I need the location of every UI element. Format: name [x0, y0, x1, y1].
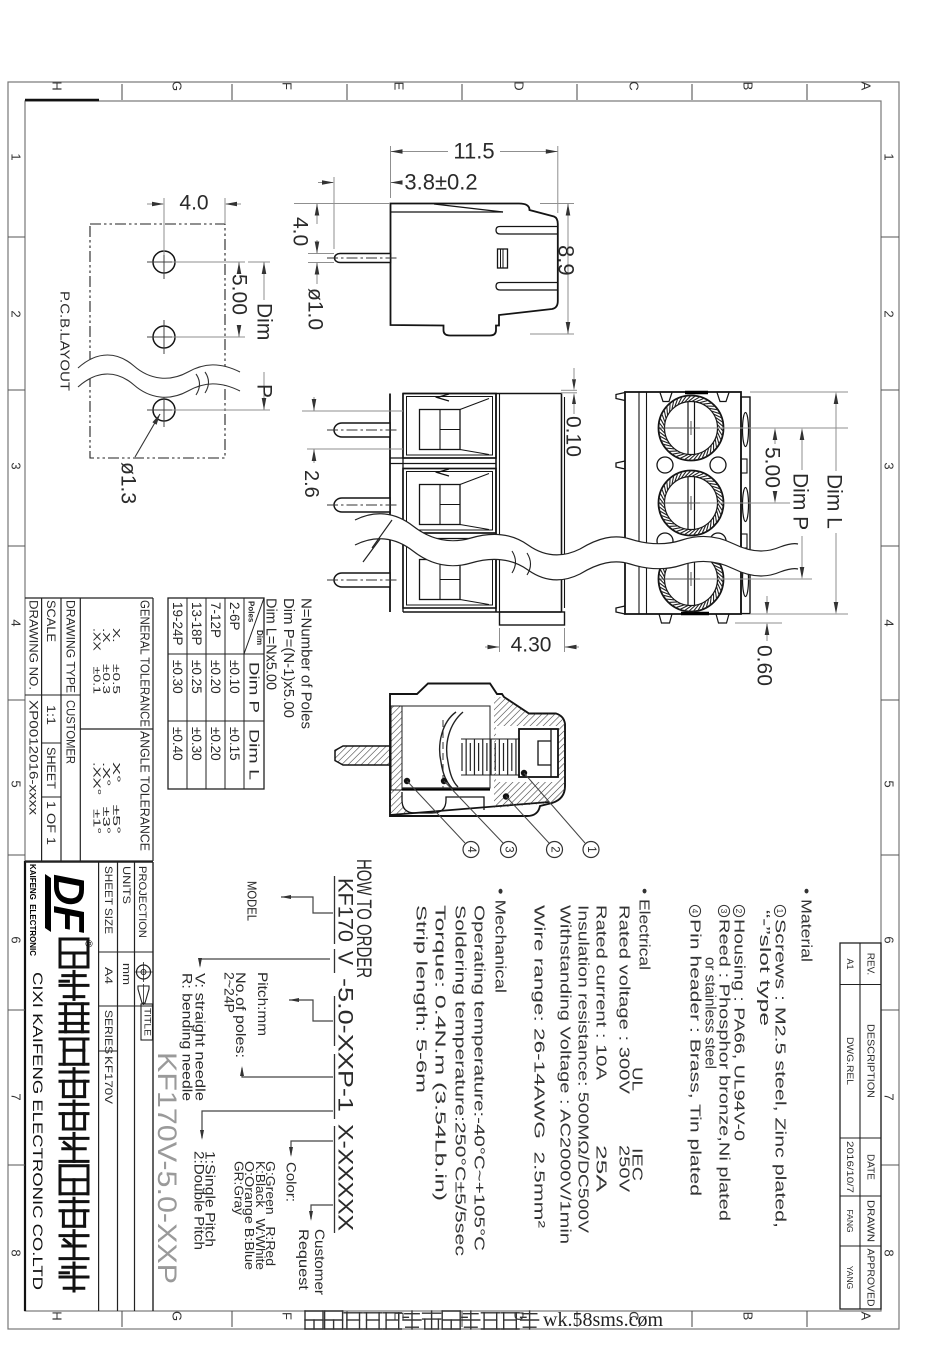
svg-text:ø1.0: ø1.0 [304, 288, 327, 330]
svg-text:±0.20: ±0.20 [208, 727, 223, 761]
svg-text:2-6P: 2-6P [227, 602, 242, 631]
svg-text:1:1: 1:1 [44, 705, 58, 725]
svg-text:• Material: • Material [798, 888, 815, 962]
svg-text:0.60: 0.60 [753, 645, 776, 686]
svg-text:13-18P: 13-18P [189, 602, 204, 646]
svg-text:Dim P: Dim P [789, 473, 812, 530]
svg-text:2: 2 [549, 846, 561, 852]
svg-text:SERIES: SERIES [102, 1010, 114, 1054]
svg-text:YANG: YANG [845, 1266, 855, 1289]
svg-text:DRAWING NO.: DRAWING NO. [27, 600, 41, 690]
svg-text:Screws : M2.5 steel, Zinc plat: Screws : M2.5 steel, Zinc plated, [772, 919, 789, 1228]
svg-text:P.C.B.LAYOUT: P.C.B.LAYOUT [58, 291, 73, 391]
svg-text:±0.10: ±0.10 [227, 660, 242, 694]
svg-text:1: 1 [585, 846, 597, 852]
svg-text:DATE: DATE [865, 1154, 876, 1180]
svg-text:4: 4 [465, 846, 477, 853]
svg-text:SCALE: SCALE [44, 600, 58, 642]
svg-text:DRAWING TYPE: DRAWING TYPE [64, 600, 78, 693]
svg-text:Dim P: Dim P [247, 662, 262, 713]
svg-text:GENERAL TOLERANCE: GENERAL TOLERANCE [138, 600, 153, 727]
svg-text:A: A [859, 82, 874, 91]
svg-text:D: D [512, 81, 527, 90]
svg-text:Rated voltage : 300V: Rated voltage : 300V [616, 905, 633, 1095]
svg-text:G: G [170, 81, 185, 91]
svg-text:• Mechanical: • Mechanical [492, 888, 509, 993]
svg-text:±0.30: ±0.30 [189, 727, 204, 761]
svg-text:5.00: 5.00 [228, 274, 251, 315]
svg-text:6: 6 [9, 936, 24, 943]
svg-text:.XX ±0.1: .XX ±0.1 [91, 628, 103, 694]
svg-text:A4: A4 [102, 967, 114, 984]
svg-text:“-”slot type: “-”slot type [756, 910, 773, 1026]
svg-text:A: A [859, 1312, 874, 1321]
svg-text:2: 2 [9, 310, 24, 317]
svg-text:ø1.3: ø1.3 [117, 462, 140, 504]
svg-text:7: 7 [882, 1093, 897, 1100]
svg-text:3: 3 [719, 909, 729, 914]
svg-text:4: 4 [9, 619, 24, 626]
svg-text:Dim L=Nx5.00: Dim L=Nx5.00 [263, 598, 280, 690]
svg-text:Color:: Color: [284, 1162, 300, 1202]
svg-text:3: 3 [503, 846, 515, 852]
svg-text:4.0: 4.0 [179, 192, 208, 215]
svg-text:C: C [627, 81, 642, 90]
svg-text:4: 4 [690, 909, 700, 914]
svg-text:XP0012016-xxxx: XP0012016-xxxx [27, 700, 41, 815]
svg-text:7-12P: 7-12P [208, 602, 223, 638]
svg-text:4.30: 4.30 [511, 634, 552, 657]
svg-text:F: F [280, 82, 295, 90]
svg-text:F: F [280, 1312, 295, 1320]
svg-text:1: 1 [882, 153, 897, 160]
svg-text:2: 2 [734, 909, 744, 914]
svg-text:GR:Gray: GR:Gray [232, 1161, 247, 1216]
svg-text:Operating temperature:-40°C~+1: Operating temperature:-40°C~+105°C [471, 905, 488, 1251]
svg-text:CUSTOMER: CUSTOMER [64, 700, 78, 764]
svg-text:Poles: Poles [247, 601, 256, 623]
svg-text:N=Number of Poles: N=Number of Poles [298, 598, 315, 729]
svg-text:Dim L: Dim L [247, 729, 262, 781]
svg-text:±0.30: ±0.30 [170, 660, 185, 694]
svg-text:APPROVED: APPROVED [865, 1249, 876, 1307]
svg-text:Insulation resistance: 500MΩ/D: Insulation resistance: 500MΩ/DC500V [575, 905, 592, 1234]
svg-text:7: 7 [9, 1093, 24, 1100]
svg-text:250V: 250V [616, 1145, 633, 1193]
svg-text:REV.: REV. [865, 953, 876, 975]
svg-text:3.8±0.2: 3.8±0.2 [404, 170, 477, 195]
svg-text:Strip length: 5-6m: Strip length: 5-6m [413, 905, 430, 1093]
svg-text:V: V [334, 951, 357, 965]
svg-text:1 OF 1: 1 OF 1 [44, 801, 58, 845]
svg-text:Dim L: Dim L [823, 474, 846, 529]
svg-text:Wire range: 26-14AWG 2.5mm²: Wire range: 26-14AWG 2.5mm² [531, 905, 548, 1228]
svg-text:Pitch:mm: Pitch:mm [255, 972, 271, 1036]
svg-text:TITLE: TITLE [142, 1008, 153, 1036]
svg-text:0.10: 0.10 [562, 416, 585, 457]
svg-text:Dim: Dim [253, 303, 276, 340]
svg-text:P: P [253, 384, 276, 398]
svg-text:25A: 25A [593, 1145, 610, 1193]
svg-text:DF: DF [44, 874, 93, 933]
svg-text:R: bending needle: R: bending needle [180, 973, 196, 1101]
svg-text:19-24P: 19-24P [170, 602, 185, 646]
svg-text:Rated current : 10A: Rated current : 10A [593, 905, 610, 1081]
svg-text:±0.20: ±0.20 [208, 660, 223, 694]
svg-text:2: 2 [882, 310, 897, 317]
svg-text:±0.25: ±0.25 [189, 660, 204, 694]
svg-text:• Electrical: • Electrical [636, 888, 653, 970]
svg-text:B: B [741, 82, 756, 91]
svg-text:KF170V-5.0-XXP: KF170V-5.0-XXP [152, 1052, 182, 1284]
svg-text:B: B [741, 1312, 756, 1321]
svg-text:2~24P: 2~24P [222, 972, 238, 1013]
svg-text:A1: A1 [845, 958, 855, 969]
svg-text:2:Double Pitch: 2:Double Pitch [192, 1151, 208, 1250]
svg-text:Soldering temperature:250°C±5/: Soldering temperature:250°C±5/5sec [452, 905, 469, 1257]
svg-text:mm: mm [120, 963, 132, 985]
svg-text:5.00: 5.00 [761, 447, 784, 488]
svg-text:3: 3 [9, 462, 24, 469]
svg-text:.XX° ±1°: .XX° ±1° [91, 762, 103, 834]
svg-text:±0.15: ±0.15 [227, 727, 242, 761]
svg-text:PROJECTION: PROJECTION [136, 866, 148, 938]
svg-text:5: 5 [9, 780, 24, 787]
svg-text:KF170: KF170 [334, 878, 357, 942]
svg-text:4.0: 4.0 [289, 217, 312, 246]
svg-text:X-XXXXX: X-XXXXX [334, 1124, 357, 1231]
svg-text:4: 4 [882, 619, 897, 626]
svg-text:Request: Request [296, 1229, 312, 1290]
svg-text:G: G [170, 1311, 185, 1321]
svg-text:2.6: 2.6 [300, 470, 322, 498]
svg-text:SHEET: SHEET [44, 747, 58, 790]
svg-text:3: 3 [882, 462, 897, 469]
svg-text:H: H [50, 81, 65, 90]
svg-text:DWG.REL: DWG.REL [845, 1037, 855, 1085]
svg-text:11.5: 11.5 [453, 139, 494, 164]
svg-text:KF170V: KF170V [102, 1056, 114, 1105]
svg-text:MODEL: MODEL [245, 881, 260, 921]
svg-text:FANG: FANG [845, 1209, 855, 1232]
svg-text:H: H [50, 1311, 65, 1320]
svg-text:Torque: 0.4N.m (3.54Lb.in): Torque: 0.4N.m (3.54Lb.in) [432, 905, 449, 1201]
svg-text:DESCRIPTION: DESCRIPTION [865, 1024, 876, 1098]
svg-text:wk.58sms.cøm: wk.58sms.cøm [543, 1309, 663, 1331]
svg-text:SHEET SIZE: SHEET SIZE [102, 866, 114, 934]
svg-text:ANGLE TOLERANCE: ANGLE TOLERANCE [138, 731, 153, 851]
svg-text:6: 6 [882, 936, 897, 943]
svg-text:DRAWN: DRAWN [865, 1200, 876, 1242]
svg-text:CIXI KAIFENG ELECTRONIC CO.LTD: CIXI KAIFENG ELECTRONIC CO.LTD [30, 972, 45, 1290]
svg-text:2016/10/7: 2016/10/7 [845, 1141, 855, 1193]
svg-text:Customer: Customer [312, 1229, 328, 1295]
svg-text:±0.40: ±0.40 [170, 727, 185, 761]
svg-text:1: 1 [9, 153, 24, 160]
svg-text:8: 8 [882, 1249, 897, 1256]
svg-text:8: 8 [9, 1249, 24, 1256]
svg-text:-5.0-XXP-1: -5.0-XXP-1 [334, 978, 357, 1112]
svg-text:E: E [392, 82, 407, 91]
svg-text:1: 1 [775, 909, 785, 914]
svg-text:KAIFENG ELECTRONIC: KAIFENG ELECTRONIC [28, 864, 38, 956]
svg-text:Withstanding Voltage : AC2000V: Withstanding Voltage : AC2000V/1min [557, 905, 574, 1244]
svg-text:Pin header : Brass, Tin plated: Pin header : Brass, Tin plated [687, 919, 704, 1196]
svg-text:8.9: 8.9 [554, 245, 579, 276]
svg-text:Dim P=(N-1)x5.00: Dim P=(N-1)x5.00 [280, 598, 297, 718]
svg-text:UNITS: UNITS [120, 866, 132, 904]
svg-text:5: 5 [882, 780, 897, 787]
